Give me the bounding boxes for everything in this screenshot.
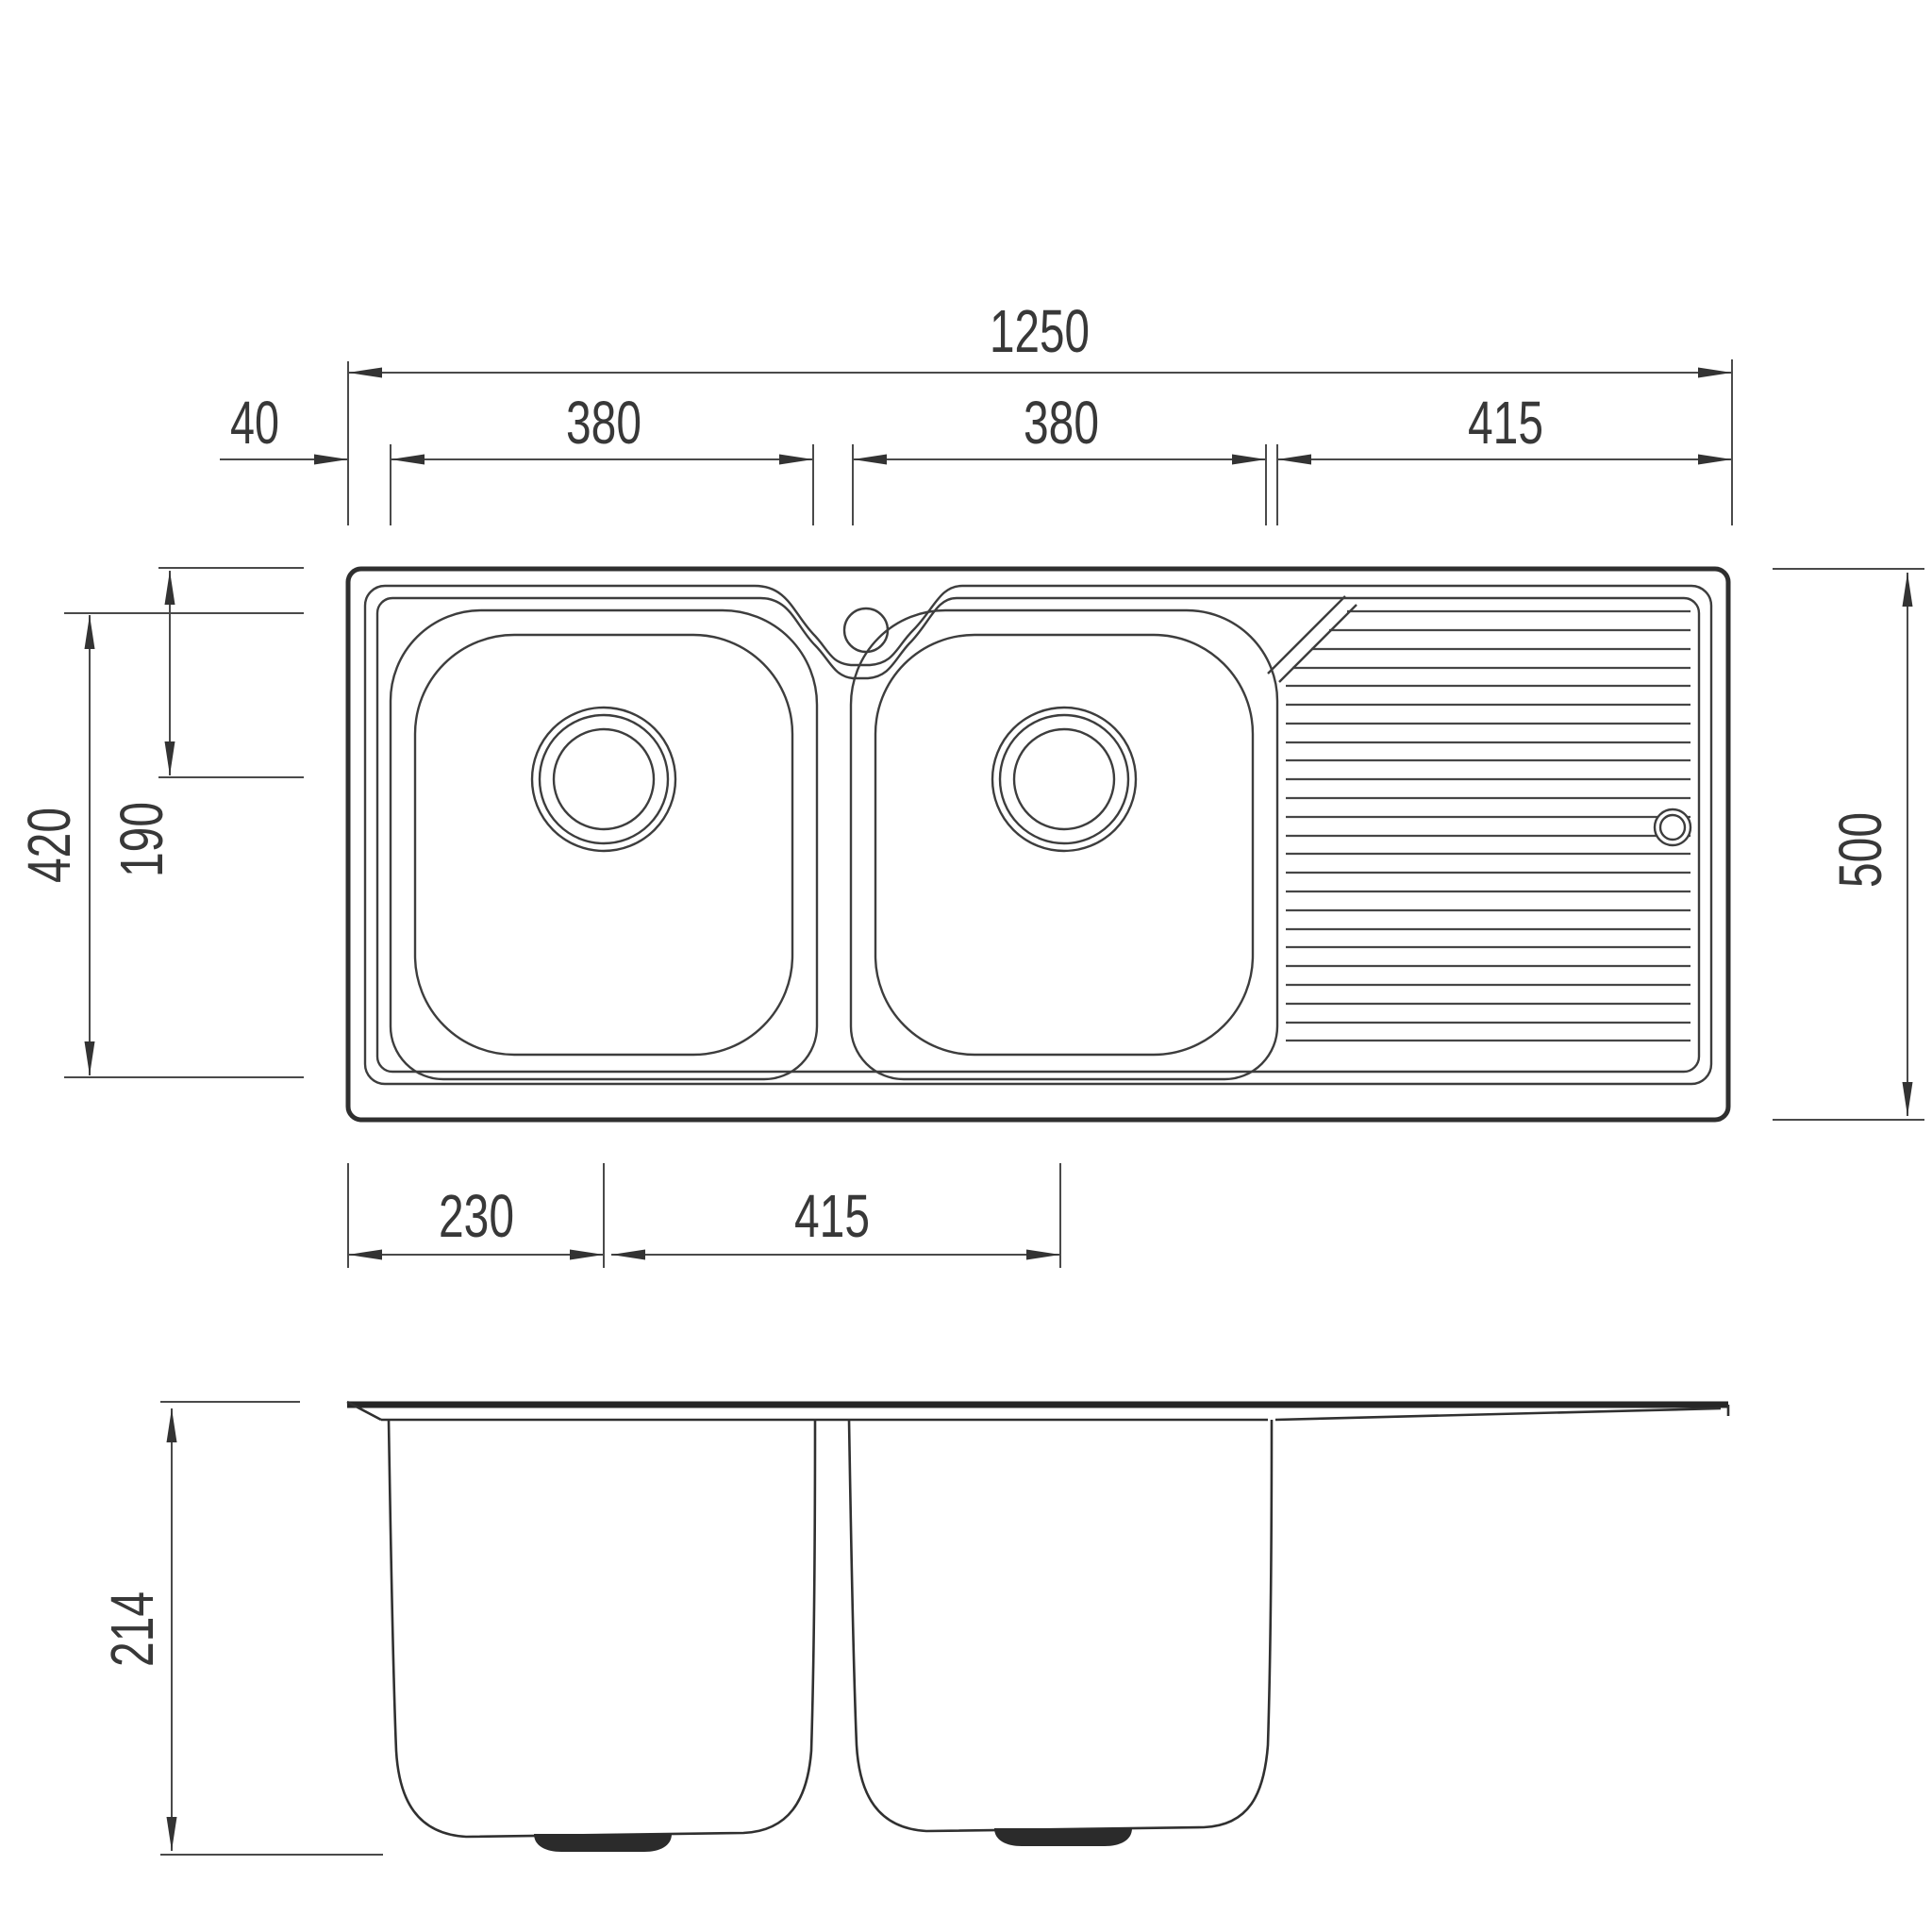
bowl-left-profile: [389, 1420, 815, 1837]
dim-label-bowl-front-back: 420: [15, 808, 83, 883]
bowl-right-profile: [849, 1420, 1272, 1831]
drainer-chamfer-line: [1268, 596, 1345, 674]
dim-label-drain-center-offset: 190: [108, 802, 175, 877]
dim-label-bowl2-width: 380: [1024, 389, 1099, 457]
drainer-ribs: [1286, 611, 1690, 1041]
bowl-right-waste-fitting: [994, 1828, 1132, 1846]
dim-label-drain-spacing: 415: [794, 1182, 870, 1250]
dim-label-total-width: 1250: [990, 297, 1090, 365]
dimension-bowl-depth: 214: [98, 1402, 383, 1855]
dim-label-bowl1-width: 380: [566, 389, 641, 457]
faucet-hole: [844, 608, 888, 652]
dim-label-drain1-from-edge: 230: [439, 1182, 514, 1250]
section-view: [347, 1402, 1728, 1852]
sink-technical-drawing: 1250 40 380 380 415 420 190 500: [0, 0, 1932, 1932]
bowl-left-drain: [532, 708, 675, 851]
dimension-row-upper: 40 380 380 415: [220, 389, 1732, 525]
dim-label-drainer-width: 415: [1468, 389, 1543, 457]
bowl-left-waste-fitting: [534, 1834, 672, 1852]
bowl-right: [851, 610, 1277, 1079]
plan-view: [348, 569, 1728, 1120]
drawing-sheet: 1250 40 380 380 415 420 190 500: [0, 0, 1932, 1932]
drainer-chamfer-line: [1279, 605, 1357, 682]
drainer-board: [1268, 596, 1690, 1041]
dimension-bottom-drains: 230 415: [348, 1163, 1060, 1268]
bowl-left: [391, 610, 817, 1079]
dimension-right-total-depth: 500: [1773, 569, 1924, 1120]
drainer-drain-hole: [1655, 809, 1690, 845]
dim-label-total-depth: 500: [1826, 812, 1894, 888]
dim-label-bowl-depth: 214: [98, 1591, 166, 1667]
drainer-underside-line: [1275, 1408, 1721, 1420]
bowl-right-drain: [992, 708, 1136, 851]
dimension-left-drain-offset: 190: [108, 568, 304, 877]
dim-label-edge-offset: 40: [230, 389, 279, 457]
